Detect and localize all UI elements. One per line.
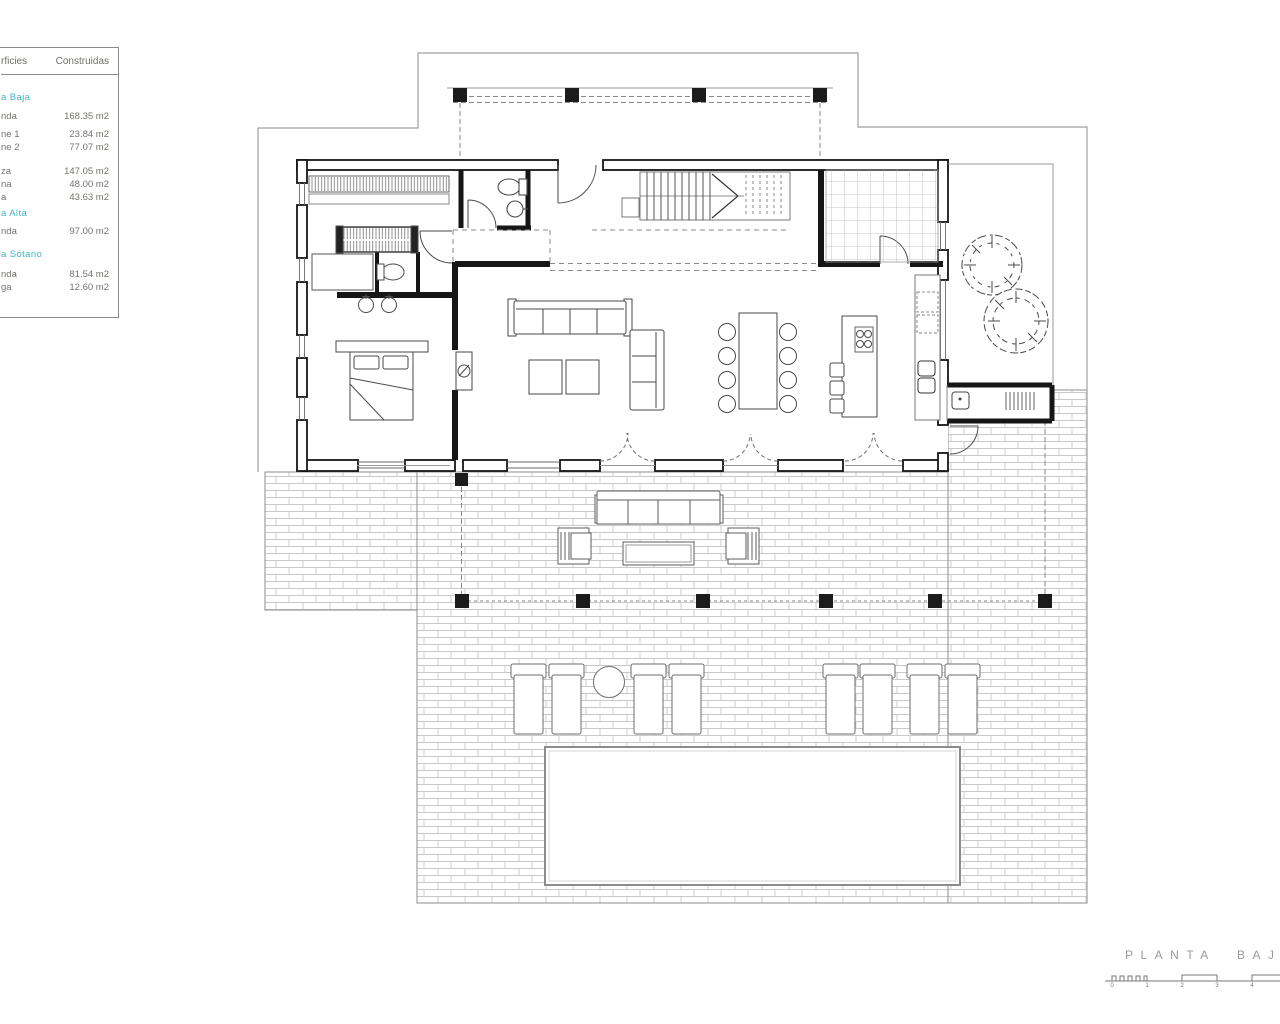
plan-title: PLANTA BAJ [1125, 948, 1280, 962]
surface-table: rficies Construidas a Baja nda168.35 m2 … [0, 47, 119, 318]
front-porch [447, 88, 833, 160]
scale-label: 4 [1247, 983, 1257, 989]
section-heading: a Baja [1, 91, 109, 104]
header-label-col: rficies [1, 56, 27, 67]
table-row: nda97.00 m2 [1, 225, 109, 238]
table-row: nda81.54 m2 [1, 268, 109, 281]
tree-icon [984, 289, 1048, 353]
floor-plan-drawing [0, 0, 1280, 1024]
scale-label: 3 [1212, 983, 1222, 989]
table-row: ne 123.84 m2 [1, 128, 109, 141]
floor-plan-page: { "surface_table": { "header": { "col_la… [0, 0, 1280, 1024]
surface-table-header: rficies Construidas [1, 48, 118, 75]
courtyard [948, 164, 1053, 385]
section-heading: a Alta [1, 207, 109, 220]
table-row: ne 277.07 m2 [1, 141, 109, 154]
table-row: nda168.35 m2 [1, 110, 109, 123]
dining-set [719, 313, 797, 413]
scale-bar [1105, 975, 1280, 981]
entry-hall [826, 170, 938, 262]
bbq-counter [947, 385, 1052, 421]
scale-label: 0 [1107, 983, 1117, 989]
scale-label: 1 [1142, 983, 1152, 989]
surface-table-body: a Baja nda168.35 m2 ne 123.84 m2 ne 277.… [1, 75, 118, 294]
section-heading: a Sótano [1, 248, 109, 261]
table-row: za147.05 m2 [1, 165, 109, 178]
header-value-col: Construidas [56, 56, 109, 67]
scale-label: 2 [1177, 983, 1187, 989]
table-row: a43.63 m2 [1, 191, 109, 204]
swimming-pool [545, 747, 960, 885]
table-row: na48.00 m2 [1, 178, 109, 191]
tree-icon [962, 235, 1022, 295]
table-row: ga12.60 m2 [1, 281, 109, 294]
